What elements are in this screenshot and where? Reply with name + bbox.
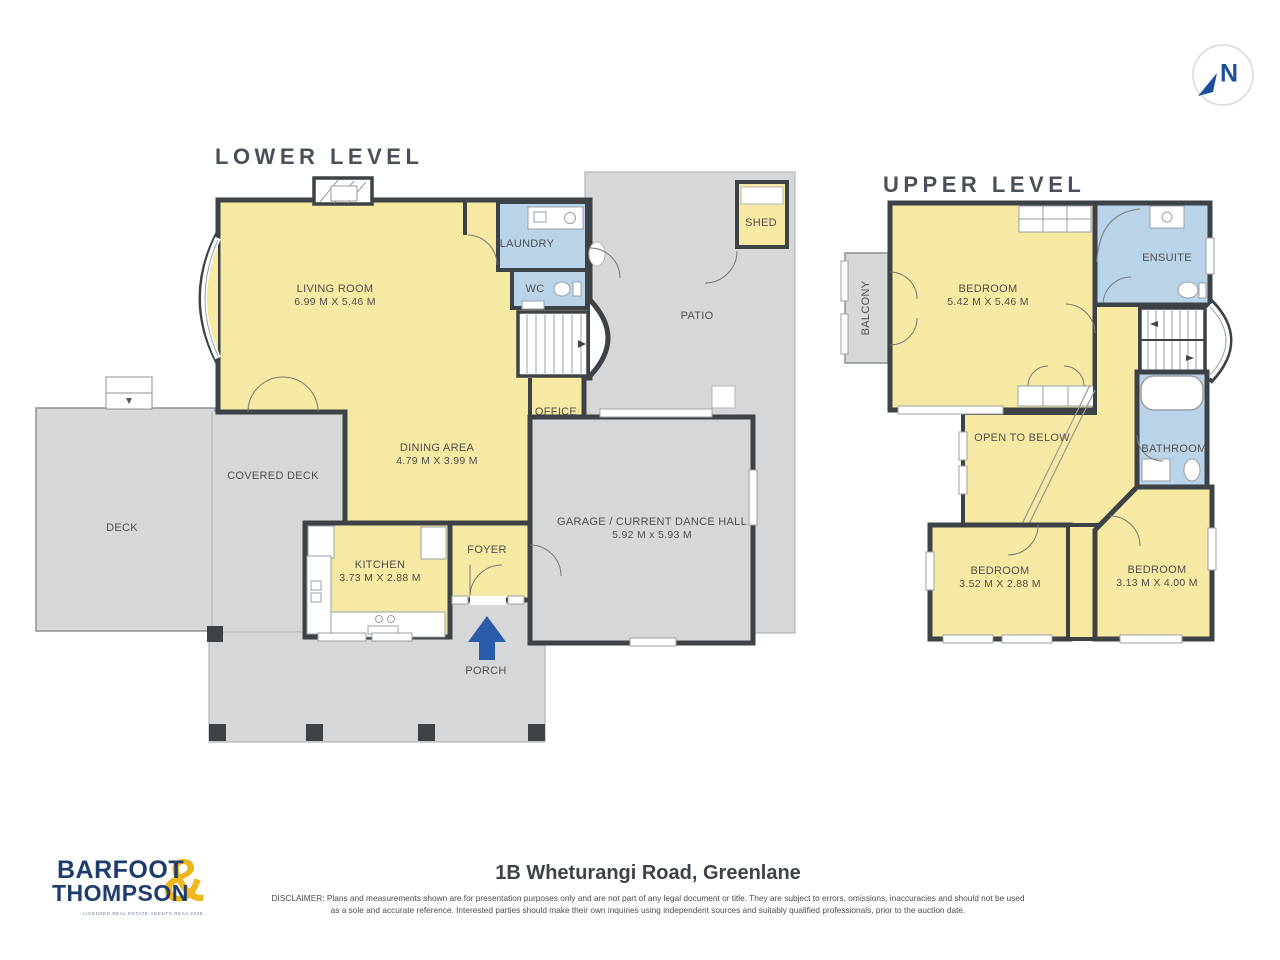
bathtub <box>1141 376 1203 410</box>
covered-deck-area-lower <box>212 523 305 632</box>
room-label-dining: DINING AREA 4.79 M X 3.99 M <box>396 441 478 469</box>
patio-tank <box>589 242 605 266</box>
room-label-covered-deck: COVERED DECK <box>227 469 319 483</box>
room-label-office: OFFICE <box>535 405 577 419</box>
room-label-deck: DECK <box>106 521 138 535</box>
ensuite-vanity <box>1150 206 1184 228</box>
wc-toilet <box>554 282 570 296</box>
room-foyer <box>450 523 530 600</box>
kitchen-pantry <box>308 526 334 558</box>
room-label-living: LIVING ROOM 6.99 M X 5.46 M <box>294 282 376 310</box>
room-label-bathroom: BATHROOM <box>1141 442 1206 456</box>
room-label-open-to-below: OPEN TO BELOW <box>974 431 1070 445</box>
room-label-bedroom-main: BEDROOM 5.42 M X 5.46 M <box>947 282 1029 310</box>
floor-plan-page: LOWER LEVEL UPPER LEVEL LIVING ROOM 6.99… <box>0 0 1280 960</box>
bathroom-vanity <box>1142 459 1170 481</box>
porch-post <box>528 724 545 741</box>
porch-post <box>207 626 223 642</box>
window <box>841 261 848 301</box>
shed-window <box>741 187 783 204</box>
porch-post <box>418 724 435 741</box>
room-label-bedroom-two: BEDROOM 3.52 M X 2.88 M <box>959 564 1041 592</box>
wc-toilet-tank <box>573 282 581 296</box>
floor-plan-drawing <box>0 0 1280 960</box>
deck-area <box>36 408 215 631</box>
lower-level-title: LOWER LEVEL <box>215 144 423 170</box>
room-label-laundry: LAUNDRY <box>500 237 554 251</box>
kitchen-sink <box>311 581 321 590</box>
wc-basin <box>522 301 544 309</box>
disclaimer-text: DISCLAIMER: Plans and measurements shown… <box>233 893 1063 916</box>
covered-deck-area <box>212 412 345 523</box>
property-address: 1B Wheturangi Road, Greenlane <box>495 862 801 885</box>
closet <box>1018 386 1094 406</box>
bathroom-toilet <box>1184 459 1200 481</box>
room-label-ensuite: ENSUITE <box>1142 251 1192 265</box>
window <box>841 314 848 354</box>
ensuite-toilet-tank <box>1199 283 1206 298</box>
disclaimer-line1: DISCLAIMER: Plans and measurements shown… <box>233 893 1063 905</box>
ensuite-toilet <box>1178 282 1198 298</box>
room-label-bedroom-three: BEDROOM 3.13 M X 4.00 M <box>1116 563 1198 591</box>
porch-post <box>209 724 226 741</box>
room-label-balcony: BALCONY <box>859 281 873 336</box>
barfoot-thompson-logo: & BARFOOT THOMPSON LICENSED REAL ESTATE … <box>56 856 226 926</box>
room-label-patio: PATIO <box>681 309 714 323</box>
porch-post <box>306 724 323 741</box>
kitchen-fridge <box>421 527 446 559</box>
room-label-shed: SHED <box>745 216 777 230</box>
fireplace-hearth <box>331 186 357 201</box>
room-label-foyer: FOYER <box>467 543 506 557</box>
upper-level-title: UPPER LEVEL <box>883 172 1085 198</box>
staircase-lower <box>518 312 588 376</box>
logo-line2: THOMPSON <box>52 880 189 907</box>
disclaimer-line2: as a sole and accurate reference. Intere… <box>233 905 1063 917</box>
room-label-garage: GARAGE / CURRENT DANCE HALL 5.92 M x 5.9… <box>557 515 747 543</box>
kitchen-sink <box>311 593 321 602</box>
washing-machine <box>534 212 546 222</box>
room-label-wc: WC <box>526 282 545 296</box>
room-label-kitchen: KITCHEN 3.73 M X 2.88 M <box>339 558 421 586</box>
room-label-porch: PORCH <box>465 664 506 678</box>
compass-north-label: N <box>1220 60 1238 89</box>
patio-post <box>712 386 735 408</box>
